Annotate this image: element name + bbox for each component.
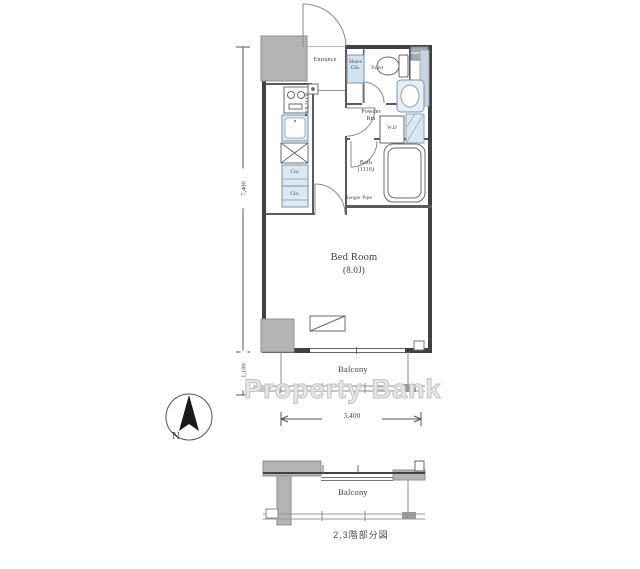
entrance-step-line — [314, 90, 345, 91]
toilet-label: Toilet — [364, 66, 390, 72]
watermark-text: Property Bank — [244, 374, 442, 405]
floorplan-drawing — [0, 0, 640, 569]
entrance-label: Entrance — [304, 57, 346, 64]
main-height-dimension: 7,400 — [241, 169, 248, 209]
shoes-closet-label: Shoes Clo. — [346, 60, 365, 72]
entrance-threshold-line — [307, 46, 345, 47]
hall-meter-box — [308, 84, 318, 94]
floorplan-canvas: Entrance Shoes Clo. Toilet Powder Rm W.D… — [0, 0, 640, 569]
shutter-box — [414, 341, 424, 350]
hanger-pipe-label: Hanger Pipe — [345, 196, 395, 202]
subplan-balcony-label: Balcony — [313, 487, 393, 497]
balcony-label: Balcony — [313, 364, 393, 374]
powder-room-label: Powder Rm — [348, 109, 394, 123]
washer-space-label: W.D — [380, 126, 404, 132]
refrigerator-space — [281, 143, 308, 163]
bedroom-label: Bed Room (8.0J) — [314, 252, 394, 275]
bedroom-window — [310, 347, 405, 354]
kitchen-label: Kitchen — [303, 93, 309, 117]
bath-label: Bath (1116) — [349, 160, 383, 174]
closet-upper-label: Clo. — [283, 170, 307, 176]
kitchen-sink-icon — [282, 115, 308, 141]
width-dimension: 3,400 — [322, 412, 382, 420]
subplan-caption: 2,3階部分図 — [316, 530, 406, 541]
compass-north-label: N — [166, 430, 186, 443]
closet-lower-label: Clo. — [283, 192, 307, 198]
bedroom-counter — [310, 316, 345, 331]
side-pipe-space — [406, 114, 424, 143]
bathtub-icon — [384, 144, 425, 202]
washbasin-icon — [397, 80, 424, 112]
